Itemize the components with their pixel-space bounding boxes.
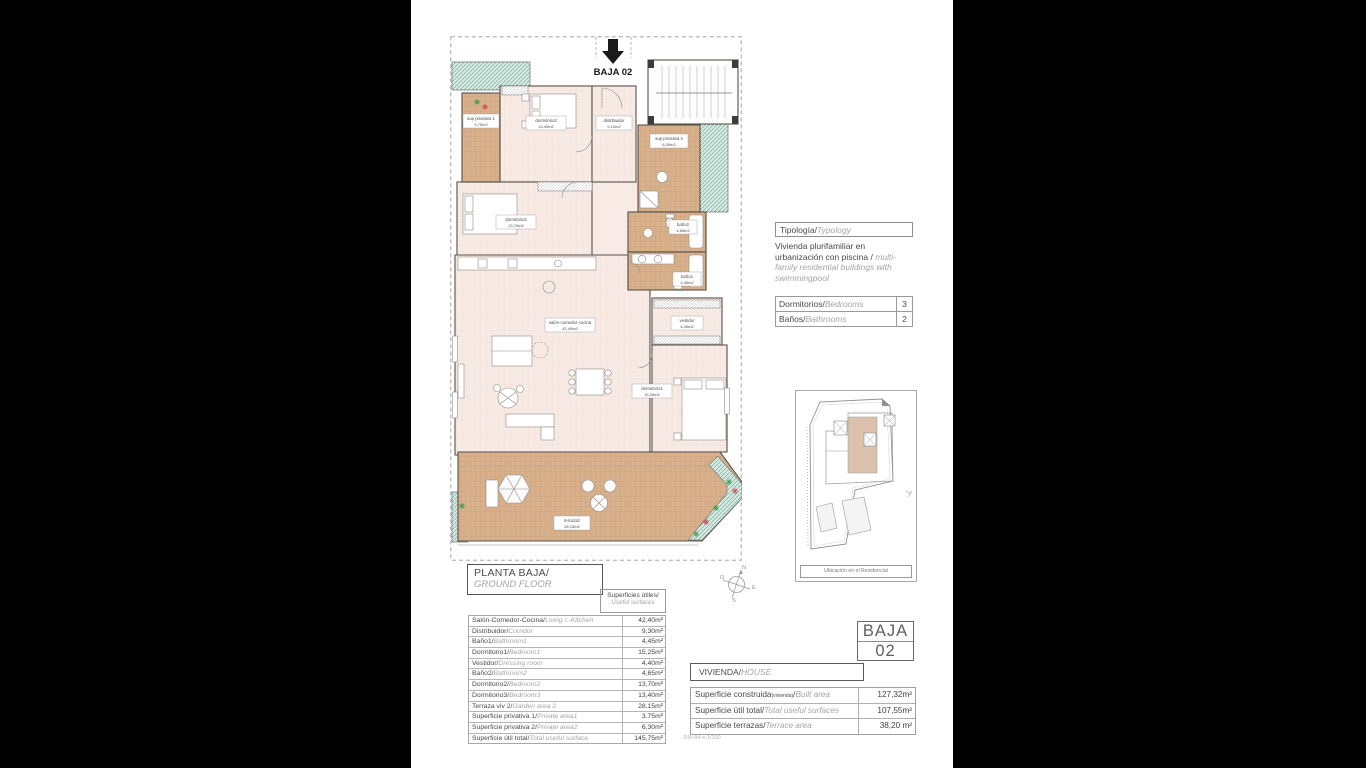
stairwell [648, 60, 738, 124]
surface-row: Terraza viv 2/Garden area 228,15m² [469, 701, 665, 712]
compass-o: O [720, 575, 725, 581]
room-label: baño14,45m2 [673, 272, 701, 286]
entry-arrow-icon [602, 39, 624, 64]
surface-row: Salón-Comedor-Cocina/Living r.-Kitchen42… [469, 616, 665, 626]
typology-body: Vivienda plurifamiliar en urbanización c… [775, 241, 915, 283]
room-label: vestidor4,40m2 [671, 316, 703, 330]
svg-text:4,40m2: 4,40m2 [680, 324, 694, 329]
svg-text:42,40m2: 42,40m2 [562, 326, 578, 331]
surface-row: Dormitorio1/Bedroom115,25m² [469, 647, 665, 658]
svg-text:sup privativa 2: sup privativa 2 [655, 136, 683, 141]
room-label: dormitorio115,25m2 [632, 384, 672, 398]
svg-text:15,25m2: 15,25m2 [644, 392, 660, 397]
summary-row: Superficie terrazas/Terrace area 38,20 m… [691, 718, 915, 734]
bedrooms-count: 3 [896, 297, 912, 311]
typology-header-en: Typology [817, 225, 851, 235]
letterbox-left [0, 0, 411, 768]
svg-text:dormitorio2: dormitorio2 [505, 217, 527, 222]
surfaces-table: Salón-Comedor-Cocina/Living r.-Kitchen42… [468, 615, 666, 744]
svg-text:4,45m2: 4,45m2 [680, 280, 694, 285]
unit-badge-line2: 02 [858, 641, 913, 661]
svg-text:vestidor: vestidor [679, 318, 695, 323]
unit-badge-line1: BAJA [858, 622, 913, 641]
counts-table: Dormitorios/Bedrooms 3 Baños/Bathrooms 2 [775, 296, 913, 327]
counts-es: Dormitorios/ [779, 299, 825, 309]
counts-en: Bathrooms [805, 314, 846, 324]
plan-unit-marker: BAJA 02 [594, 67, 633, 78]
surface-row: Superficie privativa 2/Private area26,30… [469, 722, 665, 733]
title-en: GROUND FLOOR [474, 579, 602, 590]
surface-row: Baño2/Bathroom24,65m² [469, 668, 665, 679]
typology-header-es: Tipología/ [780, 225, 817, 235]
svg-text:sup privativa 1: sup privativa 1 [467, 116, 495, 121]
svg-text:13,70m2: 13,70m2 [508, 223, 524, 228]
letterbox-right [953, 0, 1366, 768]
svg-text:distribuidor: distribuidor [603, 118, 625, 123]
room-label: sup privativa 26,30m2 [650, 134, 688, 148]
compass-rose: N E S O [717, 560, 761, 610]
location-map-drawing [796, 391, 916, 581]
location-map: Ubicación en el Residencial [795, 390, 917, 582]
svg-text:28,15m2: 28,15m2 [564, 524, 580, 529]
svg-text:dormitorio3: dormitorio3 [535, 118, 557, 123]
surfaces-header: Superficies útiles/ Useful surfaces [600, 589, 666, 613]
room-label: dormitorio213,70m2 [496, 215, 536, 229]
room-label: sup privativa 13,70m2 [463, 114, 499, 128]
svg-text:salón-comedor-cocina: salón-comedor-cocina [549, 320, 592, 325]
vivienda-en: HOUSE [741, 667, 771, 677]
svg-text:13,40m2: 13,40m2 [538, 124, 554, 129]
svg-text:terraza2: terraza2 [564, 518, 580, 523]
surface-row: Distribuidor/Corridor9,30m² [469, 626, 665, 637]
svg-text:3,70m2: 3,70m2 [474, 122, 488, 127]
counts-en: Bedrooms [825, 299, 864, 309]
sheet-scale-note: DIN A4 e:1/100 [657, 735, 747, 741]
room-label: distribuidor9,10m2 [596, 116, 632, 130]
screen: BAJA 02 [0, 0, 1366, 768]
svg-text:baño1: baño1 [681, 274, 694, 279]
svg-text:baño2: baño2 [677, 222, 690, 227]
counts-es: Baños/ [779, 314, 805, 324]
vivienda-es: VIVIENDA/ [699, 667, 741, 677]
svg-text:4,65m2: 4,65m2 [676, 228, 690, 233]
svg-text:dormitorio1: dormitorio1 [641, 386, 663, 391]
typology-body-es: Vivienda plurifamiliar en urbanización c… [775, 241, 873, 262]
compass-n: N [742, 565, 746, 571]
counts-row-bathrooms: Baños/Bathrooms 2 [776, 311, 912, 326]
unit-badge: BAJA 02 [857, 621, 914, 661]
title-block: PLANTA BAJA/ GROUND FLOOR [467, 564, 603, 595]
counts-row-bedrooms: Dormitorios/Bedrooms 3 [776, 297, 912, 311]
surface-row: Dormitorio2/Bedroom213,70m² [469, 679, 665, 690]
svg-text:6,30m2: 6,30m2 [662, 142, 676, 147]
surfaces-header-es: Superficies útiles/ [601, 592, 665, 599]
summary-table: Superficie construida(vivienda)/Built ar… [690, 687, 916, 735]
title-es: PLANTA BAJA/ [474, 567, 602, 579]
room-label: dormitorio313,40m2 [526, 116, 566, 130]
compass-s: S [732, 598, 736, 604]
svg-text:9,10m2: 9,10m2 [607, 124, 621, 129]
compass-e: E [752, 585, 756, 591]
surface-row-total: Superficie útil total/Total useful surfa… [469, 733, 665, 744]
surface-row: Baño1/Bathroom14,45m² [469, 636, 665, 647]
room-label: baño24,65m2 [669, 220, 697, 234]
bathrooms-count: 2 [896, 312, 912, 326]
surface-row: Superficie privativa 1/Private area13,75… [469, 711, 665, 722]
surface-row: Dormitorio3/Bedroom313,40m² [469, 690, 665, 701]
summary-row: Superficie útil total/Total useful surfa… [691, 703, 915, 719]
summary-row: Superficie construida(vivienda)/Built ar… [691, 688, 915, 703]
typology-header: Tipología/Typology [775, 222, 913, 237]
room-label: salón-comedor-cocina42,40m2 [545, 318, 595, 332]
plan-sheet: BAJA 02 [411, 0, 953, 768]
room-label: terraza228,15m2 [554, 516, 590, 530]
location-map-caption: Ubicación en el Residencial [800, 565, 912, 578]
floor-plan-drawing: BAJA 02 [450, 36, 742, 561]
surfaces-header-en: Useful surfaces [601, 599, 665, 606]
vivienda-bar: VIVIENDA/HOUSE [690, 663, 864, 681]
surface-row: Vestidor/Dressing room4,40m² [469, 658, 665, 669]
